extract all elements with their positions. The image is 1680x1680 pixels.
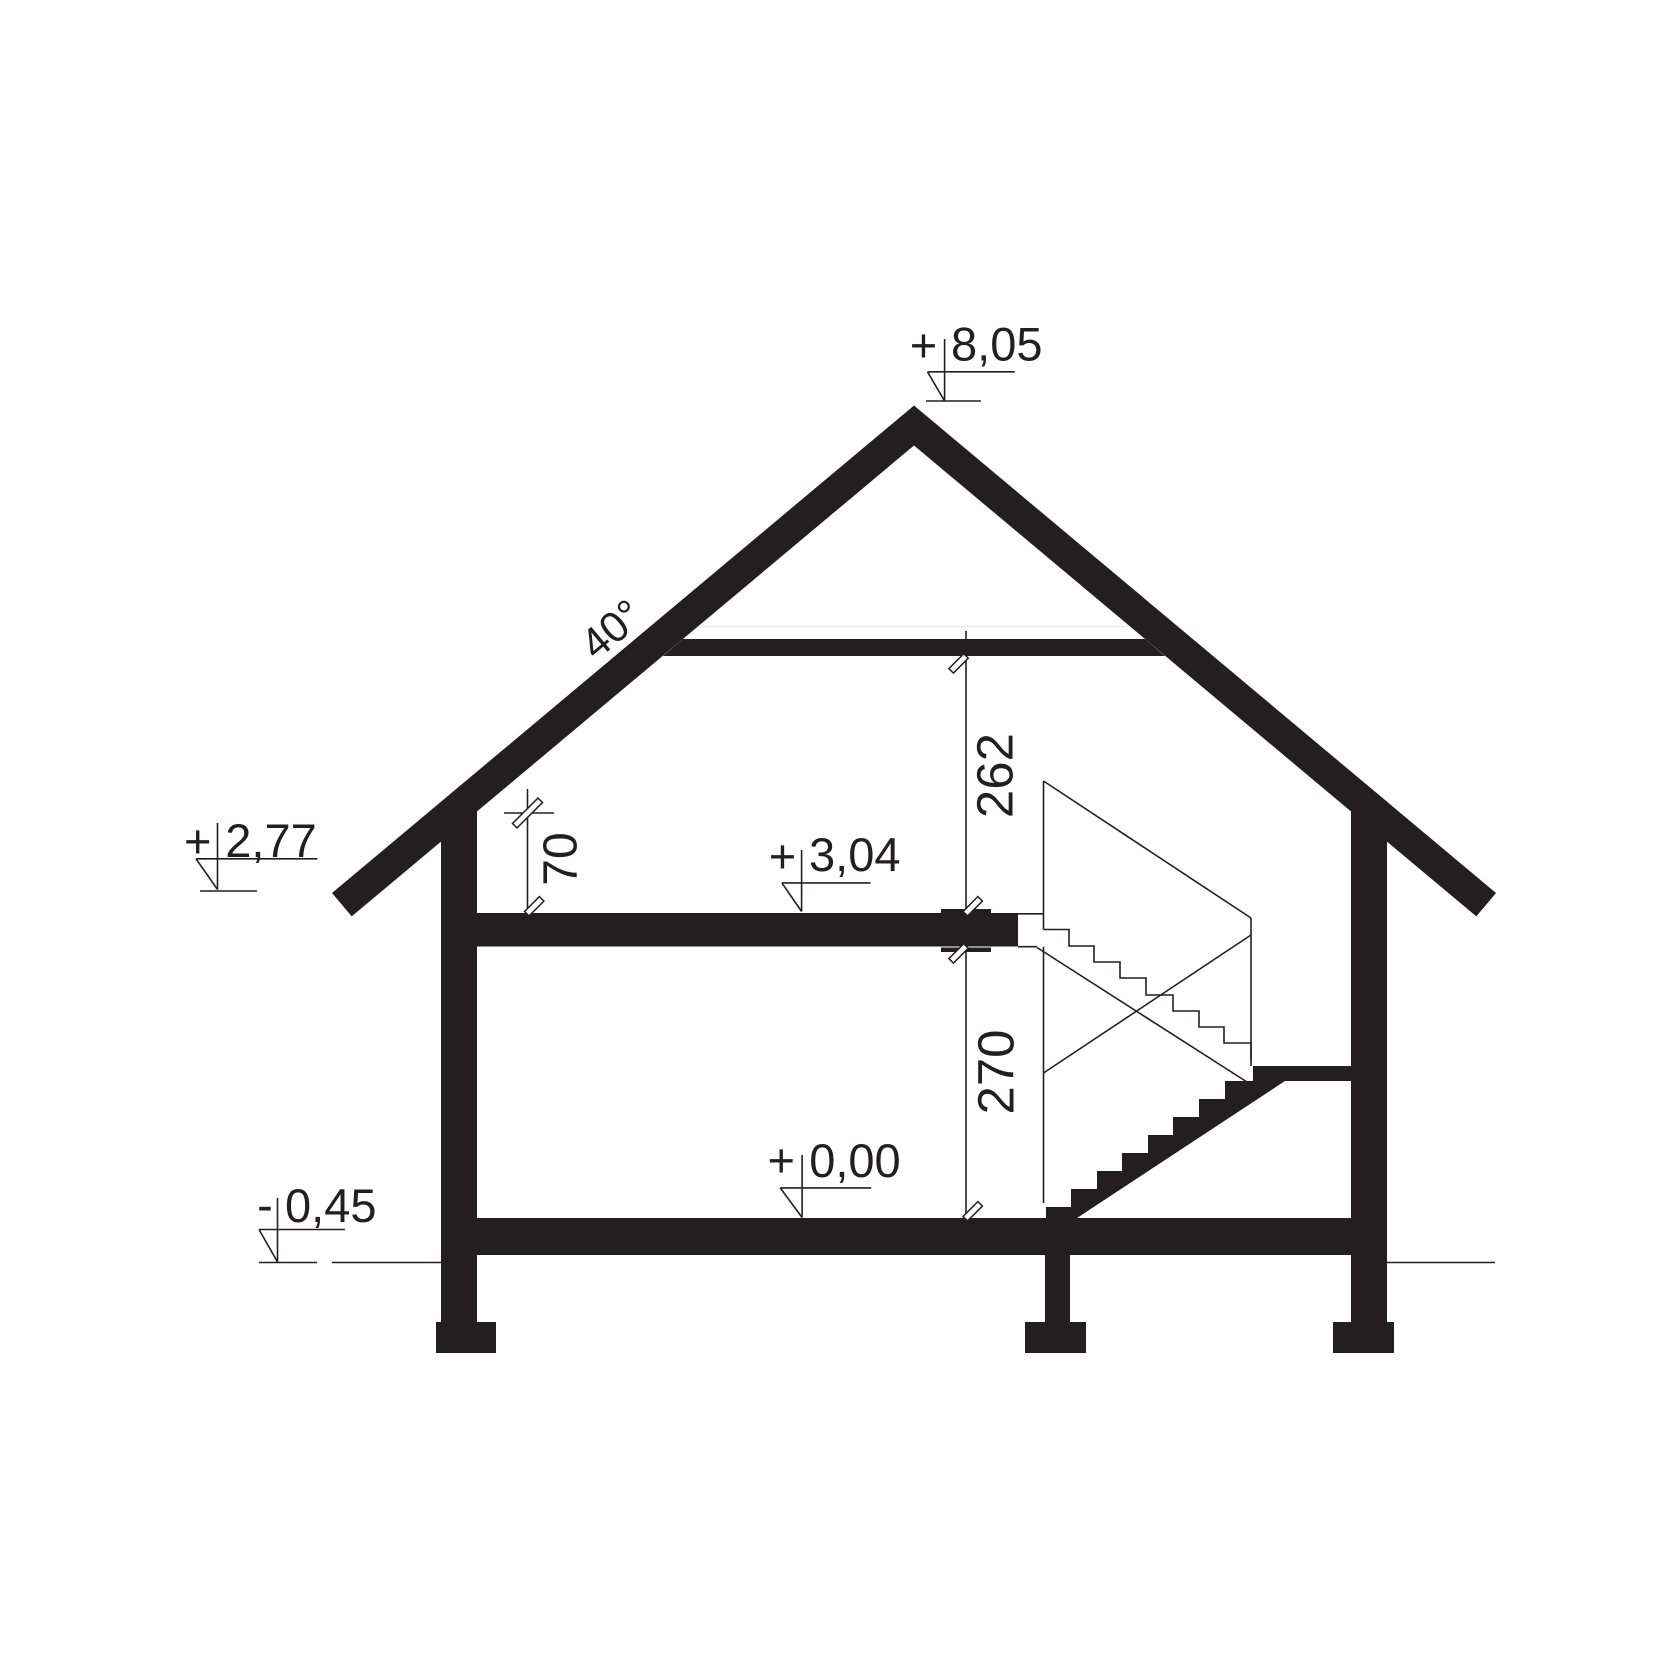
svg-text:3,04: 3,04 [809, 828, 900, 881]
svg-text:+: + [767, 1134, 794, 1187]
svg-text:70: 70 [535, 832, 588, 885]
svg-text:+: + [184, 815, 211, 868]
svg-text:8,05: 8,05 [951, 318, 1042, 371]
svg-text:270: 270 [968, 1029, 1025, 1114]
svg-text:-: - [257, 1178, 273, 1231]
svg-text:0,45: 0,45 [285, 1179, 376, 1232]
svg-text:262: 262 [967, 733, 1024, 818]
svg-text:0,00: 0,00 [809, 1134, 900, 1187]
svg-text:+: + [769, 830, 796, 883]
svg-text:2,77: 2,77 [225, 814, 316, 867]
svg-text:+: + [910, 319, 937, 372]
